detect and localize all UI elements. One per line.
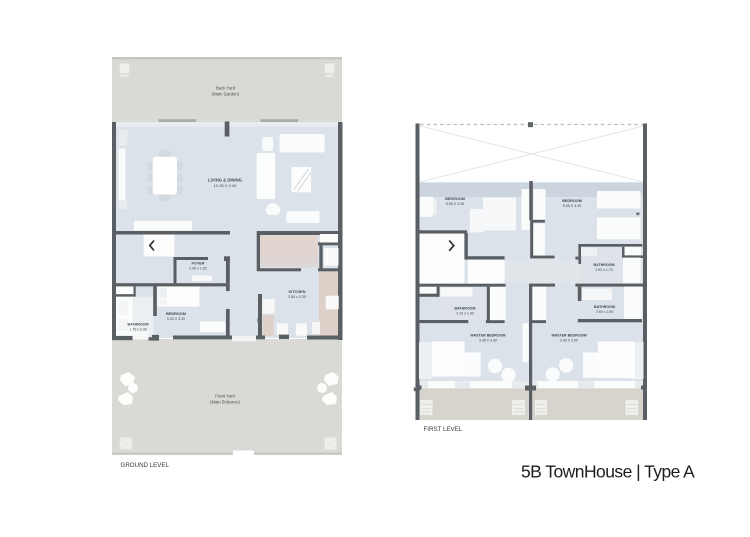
svg-text:LIVING & DINING: LIVING & DINING bbox=[208, 178, 242, 183]
svg-text:GROUND LEVEL: GROUND LEVEL bbox=[121, 462, 170, 469]
svg-text:Front Yard: Front Yard bbox=[215, 394, 235, 399]
svg-text:3.30 X 3.30: 3.30 X 3.30 bbox=[167, 317, 185, 321]
svg-text:3.50 x 3.30: 3.50 x 3.30 bbox=[288, 295, 306, 299]
svg-text:MASTER BEDROOM: MASTER BEDROOM bbox=[552, 334, 587, 338]
svg-text:2.10 x 1.90: 2.10 x 1.90 bbox=[456, 312, 473, 316]
svg-text:2.90 x 1.62: 2.90 x 1.62 bbox=[189, 267, 207, 271]
svg-text:BATHROOM: BATHROOM bbox=[594, 305, 615, 309]
svg-text:5.05 X 3.45: 5.05 X 3.45 bbox=[446, 202, 464, 206]
svg-text:BEDROOM: BEDROOM bbox=[166, 312, 186, 316]
svg-text:MASTER BEDROOM: MASTER BEDROOM bbox=[471, 334, 506, 338]
svg-text:KITCHEN: KITCHEN bbox=[289, 290, 306, 294]
svg-text:(Main Entrance): (Main Entrance) bbox=[210, 400, 240, 405]
svg-text:BEDROOM: BEDROOM bbox=[562, 199, 582, 203]
svg-text:(Main Garden): (Main Garden) bbox=[212, 92, 240, 97]
svg-text:BATHROOM: BATHROOM bbox=[128, 323, 149, 327]
svg-text:3.45 X 3.90: 3.45 X 3.90 bbox=[560, 339, 578, 343]
svg-text:FOYER: FOYER bbox=[191, 262, 204, 266]
svg-text:5B TownHouse | Type A: 5B TownHouse | Type A bbox=[521, 462, 695, 482]
svg-text:FIRST LEVEL: FIRST LEVEL bbox=[424, 426, 463, 433]
svg-text:BATHROOM: BATHROOM bbox=[455, 307, 476, 311]
svg-text:1.70 x 2.30: 1.70 x 2.30 bbox=[129, 328, 146, 332]
svg-text:BATHROOM: BATHROOM bbox=[594, 263, 615, 267]
svg-text:5.05 X 3.45: 5.05 X 3.45 bbox=[563, 204, 581, 208]
svg-text:BEDROOM: BEDROOM bbox=[445, 197, 465, 201]
svg-text:10.35 X 4.40: 10.35 X 4.40 bbox=[214, 183, 237, 188]
svg-text:Back Yard: Back Yard bbox=[216, 86, 236, 91]
svg-text:2.90 x 1.70: 2.90 x 1.70 bbox=[595, 268, 612, 272]
svg-text:2.90 x 1.90: 2.90 x 1.90 bbox=[596, 310, 613, 314]
svg-text:3.45 X 3.90: 3.45 X 3.90 bbox=[479, 339, 497, 343]
